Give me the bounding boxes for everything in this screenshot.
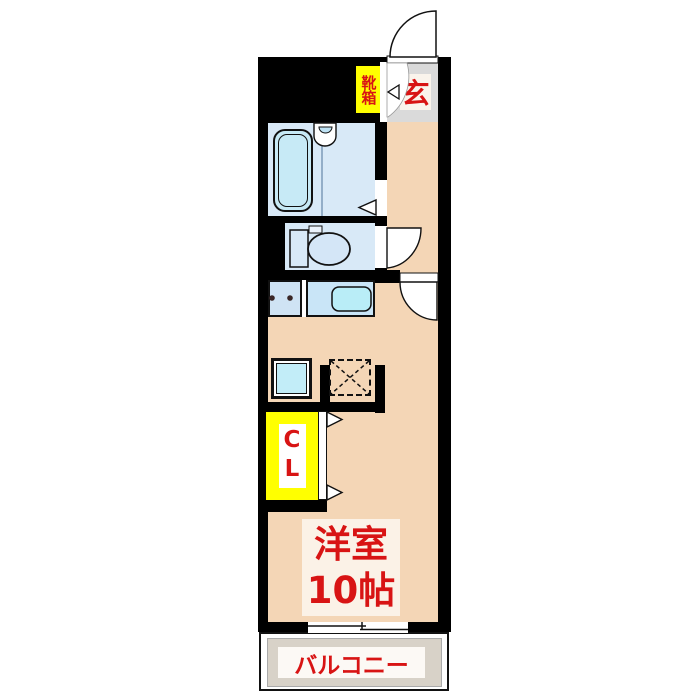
closet: CL xyxy=(266,412,318,500)
main-room-label-box: 洋室 10帖 xyxy=(302,519,400,616)
entrance-label-box: 玄 xyxy=(400,74,431,110)
shoe-cabinet-label: 靴箱 xyxy=(361,75,376,105)
shoe-cabinet: 靴箱 xyxy=(356,66,380,113)
washing-machine-pan xyxy=(276,363,307,394)
wall-bath-toilet xyxy=(268,216,375,223)
main-room-name: 洋室 xyxy=(314,522,388,568)
wall-toilet-left xyxy=(268,223,285,270)
closet-door xyxy=(318,411,327,500)
refrigerator-space xyxy=(329,359,371,396)
entrance-label: 玄 xyxy=(401,72,429,112)
bathtub xyxy=(273,129,313,212)
wall-bath-hall xyxy=(375,122,387,283)
closet-label-box: CL xyxy=(279,424,306,488)
kitchen-sink-counter xyxy=(306,280,375,317)
balcony-label-box: バルコニー xyxy=(278,647,425,678)
toilet-room-floor xyxy=(285,223,375,270)
main-room-size: 10帖 xyxy=(307,568,396,614)
floorplan-canvas: 靴箱 玄 CL 洋室 10帖 バルコニー xyxy=(0,0,700,700)
wall-closet-bottom xyxy=(258,500,327,512)
shoe-cabinet-gap xyxy=(380,62,387,122)
wall-right xyxy=(438,57,451,632)
balcony-label: バルコニー xyxy=(294,646,409,680)
balcony: バルコニー xyxy=(259,632,449,691)
wall-left xyxy=(258,123,268,632)
washing-machine-space xyxy=(271,358,312,399)
kitchen-stove-counter xyxy=(268,280,302,317)
entrance-door-swing-arc xyxy=(390,11,436,57)
wall-bottom xyxy=(258,622,451,632)
closet-label: CL xyxy=(279,427,305,485)
bathtub-inner-line xyxy=(278,134,308,207)
